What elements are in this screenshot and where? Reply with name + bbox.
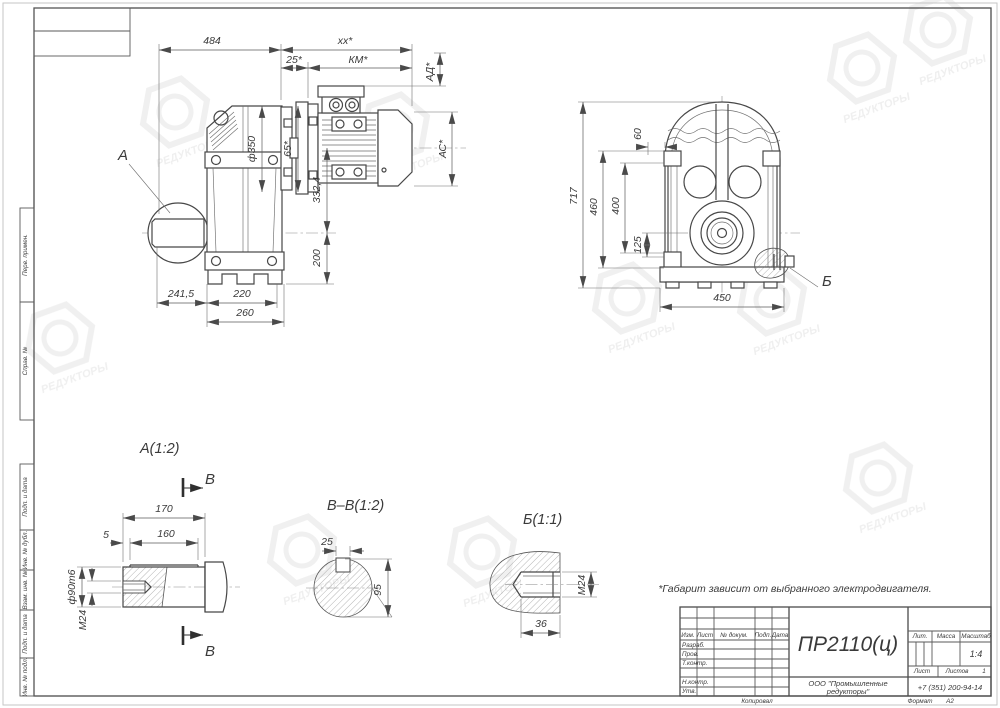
dim-170: 170: [155, 503, 173, 515]
shaft-hub: [205, 562, 227, 612]
margin-column: Перв. примен. Справ. № Подп. и дата Инв.…: [20, 208, 34, 697]
dim-25: 25*: [285, 54, 303, 66]
dim-m24-b: М24: [576, 575, 588, 596]
detail-label-a: А: [117, 147, 128, 164]
cut-label-top: В: [205, 471, 215, 488]
dim-400: 400: [610, 197, 622, 215]
side-view: А 484 хх* 25* КМ* АД* АС* ф350 65* 332,4: [117, 35, 466, 327]
stamp-row-prov: Пров.: [682, 651, 699, 658]
dim-717: 717: [568, 186, 580, 205]
stamp-row-tkontr: Т.контр.: [682, 660, 707, 667]
margin-label: Взам. инв. №: [22, 570, 29, 609]
stamp-podp: Подп.: [755, 631, 772, 639]
margin-label: Справ. №: [22, 347, 29, 376]
watermark-logo: РЕДУКТОРЫ: [835, 438, 929, 536]
section-a-title: А(1:2): [139, 441, 180, 457]
dim-3324: 332,4: [311, 177, 323, 203]
stamp-scale-value: 1:4: [970, 649, 983, 659]
dim-f90m6: ф90m6: [66, 569, 78, 604]
cut-label-bottom: В: [205, 643, 215, 660]
stamp-format: Формат: [907, 698, 932, 705]
title-block: Изм. Лист № докум. Подп. Дата Разраб. Пр…: [680, 607, 991, 705]
stamp-izm: Изм.: [681, 632, 694, 639]
watermark-logo: РЕДУКТОРЫ: [895, 0, 989, 88]
dim-5: 5: [103, 529, 109, 541]
dim-2415: 241,5: [167, 288, 194, 300]
dim-60: 60: [632, 128, 644, 140]
stamp-date: Дата: [771, 632, 789, 639]
margin-label: Подп. и дата: [21, 614, 29, 654]
margin-label: Подп. и дата: [21, 477, 29, 517]
stamp-list: Лист: [696, 632, 713, 639]
dim-m24-a: М24: [77, 610, 89, 631]
dim-36: 36: [535, 618, 547, 630]
stamp-sheet: Лист: [913, 668, 930, 675]
stamp-sheets-value: 1: [982, 668, 986, 675]
drawing-canvas: РЕДУКТОРЫ РЕДУКТОРЫ РЕДУКТОРЫ РЕДУКТОРЫ …: [0, 0, 1000, 708]
dim-450: 450: [713, 292, 731, 304]
dim-25-bb: 25: [320, 536, 333, 548]
motor: [308, 86, 412, 192]
watermark-logo: РЕДУКТОРЫ: [17, 298, 111, 396]
dim-95: 95: [372, 584, 384, 596]
note-text: *Габарит зависит от выбранного электродв…: [658, 583, 931, 595]
dim-220: 220: [232, 288, 251, 300]
stamp-scale: Масштаб: [961, 632, 991, 640]
dim-ac: АС*: [437, 139, 449, 159]
dim-125: 125: [632, 236, 644, 254]
stamp-sheets: Листов: [945, 668, 970, 675]
dim-260: 260: [235, 307, 254, 319]
section-a-view: А(1:2) В В 170 160 5 ф90m6: [66, 441, 240, 660]
dim-f350: ф350: [246, 136, 258, 162]
stamp-mass: Масса: [937, 633, 956, 640]
dim-160: 160: [157, 528, 175, 540]
stamp-format-value: А2: [945, 698, 954, 705]
margin-label: Инв. № дубл.: [21, 531, 29, 570]
stamp-row-utv: Утв.: [681, 688, 696, 695]
stamp-copied: Копировал: [741, 698, 773, 705]
org-name-line2: редукторы": [826, 687, 870, 696]
margin-label: Инв. № подл.: [21, 657, 29, 696]
stamp-lit: Лит.: [912, 633, 928, 640]
keyway-notch: [336, 558, 350, 572]
output-shaft: [152, 219, 204, 247]
stamp-row-nkontr: Н.контр.: [682, 679, 709, 686]
reducer-base: [205, 252, 284, 284]
dim-65: 65*: [282, 140, 294, 157]
motor-fan-cowl: [378, 110, 412, 186]
drawing-designation: ПР2110(ц): [798, 633, 898, 656]
section-bb-title: В–В(1:2): [327, 498, 384, 514]
watermarks: РЕДУКТОРЫ РЕДУКТОРЫ РЕДУКТОРЫ РЕДУКТОРЫ …: [17, 0, 989, 610]
dim-460: 460: [588, 198, 600, 216]
dim-ad: АД*: [424, 62, 436, 83]
org-phone: +7 (351) 200-94-14: [918, 683, 982, 692]
dim-200: 200: [311, 249, 323, 268]
dim-484: 484: [203, 35, 221, 47]
motor-terminal-box: [318, 86, 364, 113]
dim-km: КМ*: [348, 54, 368, 66]
reference-box: [34, 8, 130, 56]
margin-label: Перв. примен.: [22, 234, 29, 276]
detail-label-b: Б: [822, 273, 832, 290]
drawing-sheet: РЕДУКТОРЫ РЕДУКТОРЫ РЕДУКТОРЫ РЕДУКТОРЫ …: [0, 0, 1000, 708]
reducer-housing: [205, 106, 284, 258]
watermark-logo: РЕДУКТОРЫ: [819, 28, 913, 126]
dim-xx: хх*: [337, 35, 354, 47]
stamp-doc: № докум.: [720, 631, 748, 639]
section-b-title: Б(1:1): [523, 512, 562, 528]
stamp-row-razrab: Разраб.: [682, 641, 705, 649]
